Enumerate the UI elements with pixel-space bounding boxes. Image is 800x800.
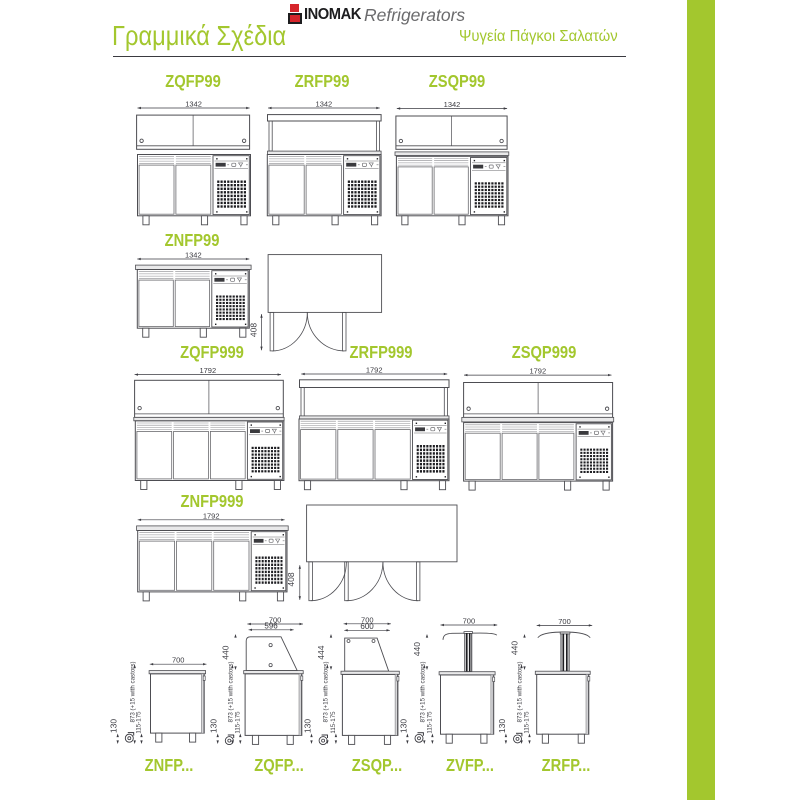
svg-text:115-175: 115-175	[330, 711, 337, 734]
svg-text:440: 440	[412, 642, 422, 656]
svg-text:115-175: 115-175	[136, 711, 143, 734]
svg-text:115-175: 115-175	[234, 711, 241, 734]
svg-text:130: 130	[209, 719, 219, 733]
svg-text:700: 700	[558, 617, 571, 626]
svg-text:130: 130	[303, 719, 313, 733]
svg-text:1342: 1342	[185, 100, 202, 109]
svg-text:440: 440	[510, 641, 520, 655]
svg-text:1342: 1342	[316, 100, 333, 109]
svg-text:1792: 1792	[203, 511, 220, 520]
svg-text:130: 130	[398, 719, 408, 733]
svg-text:873 (+15 with castors): 873 (+15 with castors)	[419, 661, 426, 722]
svg-text:130: 130	[497, 719, 507, 733]
svg-text:1342: 1342	[185, 251, 202, 260]
svg-text:115-175: 115-175	[524, 711, 531, 734]
svg-text:115-175: 115-175	[426, 711, 433, 734]
svg-text:700: 700	[463, 617, 476, 626]
svg-text:408: 408	[249, 323, 259, 337]
svg-text:408: 408	[286, 572, 296, 586]
svg-text:1342: 1342	[444, 100, 461, 109]
svg-text:596: 596	[264, 622, 278, 631]
svg-text:1792: 1792	[529, 367, 546, 376]
svg-text:600: 600	[360, 622, 374, 631]
svg-text:130: 130	[109, 719, 119, 733]
svg-text:440: 440	[221, 645, 231, 659]
svg-text:1792: 1792	[366, 366, 383, 375]
svg-text:700: 700	[172, 656, 185, 665]
svg-text:1792: 1792	[199, 366, 216, 375]
svg-text:444: 444	[316, 645, 326, 659]
svg-text:873 (+15 with castors): 873 (+15 with castors)	[322, 661, 329, 722]
